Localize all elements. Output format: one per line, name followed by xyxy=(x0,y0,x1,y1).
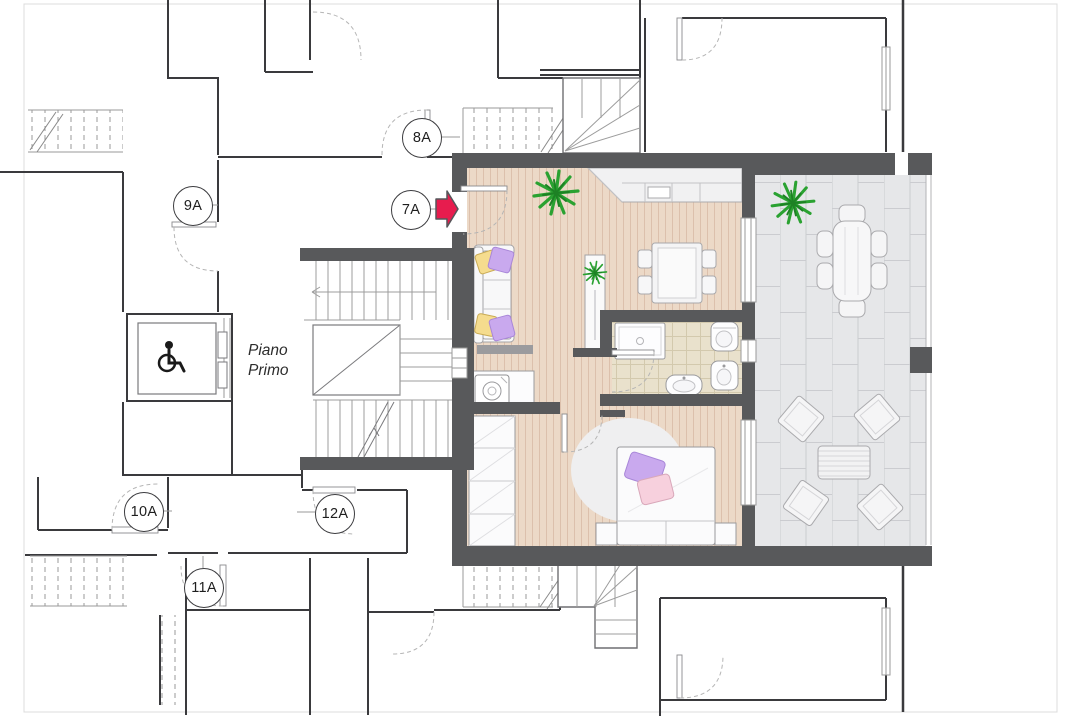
toilet xyxy=(711,322,738,351)
unit-label-8a: 8A xyxy=(402,118,442,158)
entrance-door-leaf xyxy=(461,186,507,191)
terrace-pillar xyxy=(910,347,932,373)
floor-plan-drawing xyxy=(0,0,1080,720)
unit-label-7a: 7A xyxy=(391,190,431,230)
landing-window xyxy=(452,348,467,378)
kitchen-sink xyxy=(648,187,670,198)
unit-label-10a: 10A xyxy=(124,492,164,532)
ottoman xyxy=(818,446,870,479)
elevator xyxy=(127,314,232,401)
nightstand xyxy=(715,523,736,545)
floor-name-line2: Primo xyxy=(248,361,288,381)
unit-label-11a: 11A xyxy=(184,568,224,608)
living-terrace-window xyxy=(741,218,756,302)
bidet xyxy=(711,361,738,390)
low-wall xyxy=(477,345,533,354)
nightstand xyxy=(596,523,617,545)
bedroom-terrace-window xyxy=(741,420,756,505)
stairwell-wall xyxy=(300,457,455,470)
sink xyxy=(666,375,702,395)
floor-plan-canvas: 8A 9A 7A 10A 12A 11A Piano Primo xyxy=(0,0,1080,720)
unit-label-9a: 9A xyxy=(173,186,213,226)
entrance-arrow-icon xyxy=(436,191,458,227)
floor-name-line1: Piano xyxy=(248,341,288,361)
unit-label-12a: 12A xyxy=(315,494,355,534)
stairwell-wall xyxy=(300,248,455,261)
double-bed xyxy=(617,447,715,545)
stairwell-wall xyxy=(467,248,474,470)
sofa xyxy=(474,245,515,343)
stairwell xyxy=(304,261,452,457)
floor-name: Piano Primo xyxy=(248,341,288,381)
